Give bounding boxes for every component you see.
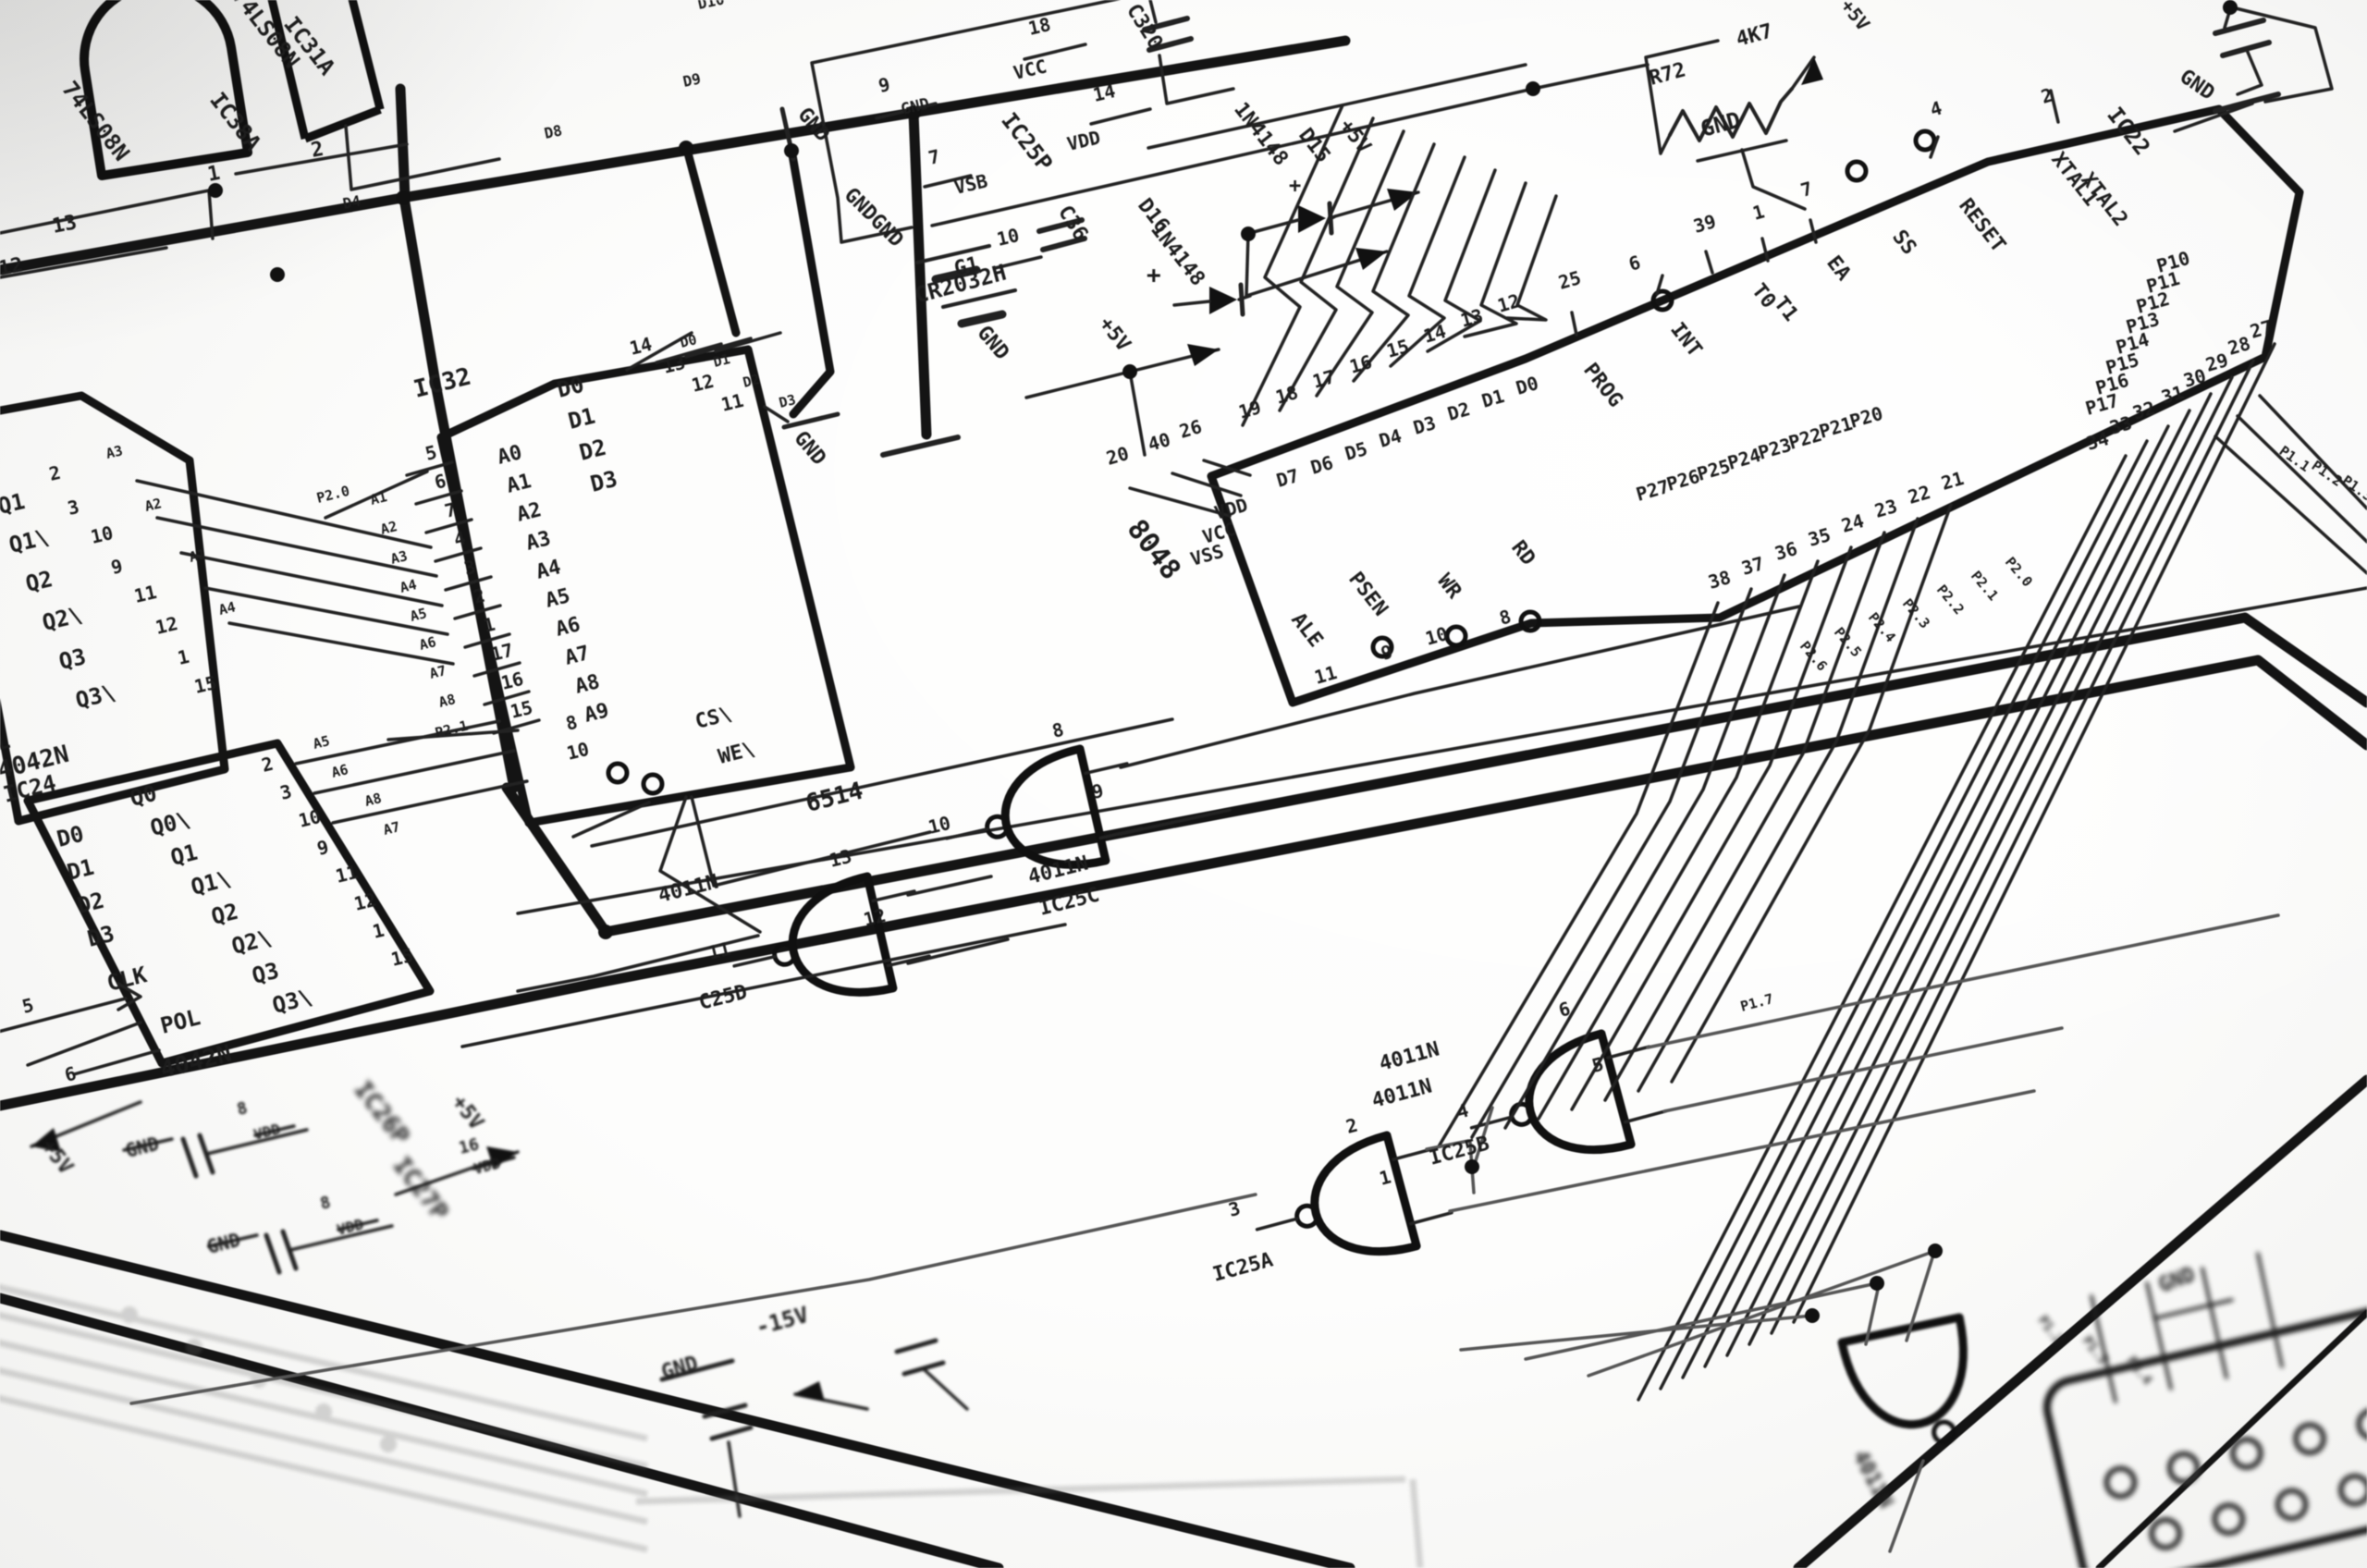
designator: IC26P bbox=[348, 1076, 414, 1150]
nand-gate-ic25b bbox=[1457, 1023, 1673, 1183]
pin-number: 8 bbox=[1049, 718, 1065, 742]
net-label: A3 bbox=[389, 547, 410, 568]
net-label: A8 bbox=[363, 790, 384, 810]
pin-number: 8 bbox=[318, 1193, 333, 1214]
pin-number: 5 bbox=[423, 441, 438, 465]
pin-name: D0 bbox=[55, 821, 87, 852]
net-5v: +5V bbox=[447, 1091, 487, 1134]
pin-number: 6 bbox=[62, 1062, 78, 1086]
pin-number: 19 bbox=[1236, 396, 1264, 423]
designator: C25D bbox=[696, 981, 749, 1015]
pin-number: 2 bbox=[309, 138, 325, 163]
connector-bottom-right bbox=[2042, 1254, 2367, 1568]
pin-number: 1 bbox=[176, 645, 191, 669]
pin-number: 37 bbox=[1739, 552, 1767, 580]
pin-number: 8 bbox=[235, 1098, 250, 1120]
pin-number: 31 bbox=[2159, 381, 2187, 409]
pin-number: 36 bbox=[1772, 537, 1800, 565]
pin-number: 12 bbox=[1495, 289, 1523, 317]
pin-number: 13 bbox=[1458, 304, 1486, 332]
pin-name: A9 bbox=[582, 699, 611, 728]
and-gate-ic38a bbox=[73, 0, 248, 176]
pin-number: 10 bbox=[995, 224, 1022, 251]
pin-name: Q2 bbox=[23, 566, 55, 597]
pin-name: D2 bbox=[1445, 398, 1473, 425]
pin-number: 3 bbox=[461, 556, 477, 580]
pin-name: VSB bbox=[952, 169, 990, 199]
pin-number: 7 bbox=[926, 145, 942, 169]
pin-name: Q1 bbox=[168, 839, 201, 871]
pin-number: 16 bbox=[1347, 350, 1375, 378]
pin-number: 6 bbox=[1626, 251, 1643, 275]
designator: IC27P bbox=[386, 1152, 453, 1226]
net-gnd: GND bbox=[2176, 65, 2219, 104]
pin-name: Q2\ bbox=[40, 602, 85, 636]
pin-name: POL bbox=[158, 1004, 203, 1039]
pin-name: PSEN bbox=[1343, 568, 1392, 620]
pin-name: A0 bbox=[495, 441, 524, 470]
part-label: 4011N bbox=[1377, 1038, 1441, 1076]
pin-name: A8 bbox=[572, 670, 602, 699]
pin-number: 9 bbox=[109, 555, 125, 579]
pin-name: A7 bbox=[562, 642, 592, 670]
pin-number: 7 bbox=[1798, 177, 1815, 201]
nand-gate-c25d bbox=[721, 867, 935, 1023]
net-label: D9 bbox=[681, 69, 703, 91]
pin-number: 40 bbox=[1146, 428, 1173, 456]
pin-name: A4 bbox=[533, 556, 563, 584]
pin-number: 2 bbox=[1343, 1114, 1360, 1138]
net-gnd: GND bbox=[2156, 1264, 2199, 1298]
pin-name: A5 bbox=[543, 584, 572, 613]
pin-number: 16 bbox=[457, 1134, 481, 1158]
net-label: P2.5 bbox=[1831, 624, 1865, 660]
pin-number: 9 bbox=[877, 73, 892, 97]
pin-number: 13 bbox=[827, 845, 853, 872]
pin-name: INT bbox=[1665, 318, 1706, 361]
pin-number: 25 bbox=[1556, 266, 1584, 294]
net-label: D4 bbox=[341, 192, 362, 213]
net-label: P2.1 bbox=[434, 717, 470, 741]
net-label: P2.3 bbox=[1899, 595, 1933, 631]
pin-name: Q3\ bbox=[270, 984, 315, 1019]
pin-number: 26 bbox=[1177, 415, 1205, 443]
pin-name: D3 bbox=[588, 466, 620, 497]
pin-name: A6 bbox=[553, 613, 583, 642]
pin-name: D1 bbox=[566, 403, 598, 435]
net-label: D0 bbox=[679, 331, 699, 351]
net-label: A2 bbox=[379, 518, 399, 538]
pin-number: 15 bbox=[1384, 335, 1412, 362]
pin-name: VDD bbox=[472, 1154, 502, 1177]
value: 4K7 bbox=[1734, 19, 1775, 51]
pin-number: 6 bbox=[1556, 998, 1573, 1022]
pin-name: VSS bbox=[1188, 540, 1226, 570]
pin-number: 10 bbox=[1423, 622, 1451, 650]
pin-number: 12 bbox=[351, 888, 378, 915]
pin-name: D3 bbox=[1411, 411, 1439, 439]
pin-number: 4 bbox=[1928, 96, 1944, 120]
pin-name: A3 bbox=[523, 527, 553, 556]
pin-number: 16 bbox=[498, 668, 525, 694]
net-gnd: GND bbox=[1698, 107, 1743, 142]
part-label: 8048 bbox=[1121, 513, 1187, 585]
schematic-labels: 74LS08NIC38A74LS08NIC31A131212D4D8D9D10G… bbox=[0, 0, 2367, 1512]
ghost-bus bbox=[0, 1283, 1420, 1568]
junction-dots bbox=[208, 0, 2238, 1323]
designator: IC25P bbox=[996, 107, 1058, 176]
net-label: A6 bbox=[330, 761, 350, 781]
pin-number: 10 bbox=[89, 521, 116, 548]
pin-number: 9 bbox=[314, 836, 330, 860]
pin-name: VCC bbox=[1012, 55, 1049, 84]
pin-name: Q1\ bbox=[6, 524, 52, 558]
pin-number: 12 bbox=[153, 612, 180, 639]
net-label: P2.0 bbox=[2002, 554, 2036, 590]
pin-number: 23 bbox=[1872, 495, 1900, 522]
pin-name: D1 bbox=[1479, 385, 1507, 412]
pin-number: 28 bbox=[2226, 332, 2253, 360]
diode-d16 bbox=[1174, 248, 1387, 314]
net-5v: +5V bbox=[1334, 115, 1375, 158]
net-label: A2 bbox=[143, 495, 164, 515]
pin-name: D6 bbox=[1308, 451, 1336, 479]
pin-name: PROG bbox=[1578, 359, 1626, 411]
net-gnd: GND bbox=[204, 1229, 242, 1258]
net-5v: +5V bbox=[1094, 312, 1134, 356]
net-label: A7 bbox=[382, 818, 402, 839]
pin-number: 12 bbox=[689, 370, 716, 397]
pin-name: A1 bbox=[504, 470, 533, 498]
part-label: 4011N bbox=[1369, 1075, 1434, 1113]
pin-name: VDD bbox=[251, 1120, 282, 1143]
net-label: A3 bbox=[104, 442, 125, 462]
net-label: A7 bbox=[428, 662, 448, 682]
designator: IC25B bbox=[1427, 1133, 1491, 1170]
pin-number: 3 bbox=[277, 780, 293, 804]
net-label: D8 bbox=[543, 121, 564, 142]
pin-number: 3 bbox=[1226, 1197, 1243, 1221]
net-label: P2.1 bbox=[1968, 568, 2002, 604]
pin-name: D7 bbox=[1274, 464, 1302, 492]
designator: D15 bbox=[1294, 124, 1334, 167]
net-gnd: GND bbox=[123, 1133, 161, 1162]
pin-number: 5 bbox=[19, 994, 35, 1018]
net-label: A6 bbox=[418, 633, 438, 654]
pin-number: 33 bbox=[2107, 411, 2135, 439]
circuit-diagram: 74LS08NIC38A74LS08NIC31A131212D4D8D9D10G… bbox=[0, 0, 2367, 1568]
pin-name: CS\ bbox=[693, 703, 734, 734]
pin-name: EA bbox=[1821, 251, 1855, 285]
pin-number: 10 bbox=[564, 738, 591, 765]
pin-name: P27 bbox=[1634, 475, 1672, 506]
pin-name: Q3 bbox=[56, 643, 88, 675]
pin-number: 22 bbox=[1906, 481, 1933, 508]
net-label: A4 bbox=[217, 598, 238, 619]
net-label: -15V bbox=[753, 1302, 811, 1341]
net-gnd: GND bbox=[659, 1353, 701, 1385]
schematic-photo: 74LS08NIC38A74LS08NIC31A131212D4D8D9D10G… bbox=[0, 0, 2367, 1568]
pin-name: WE\ bbox=[716, 738, 757, 769]
pin-name: WR bbox=[1432, 570, 1466, 604]
pin-name: D0 bbox=[1514, 372, 1541, 399]
pin-number: 35 bbox=[1806, 523, 1834, 551]
pin-name: D3 bbox=[85, 921, 117, 952]
pin-name: VDD bbox=[335, 1215, 365, 1238]
pin-number: 11 bbox=[718, 389, 745, 416]
pin-number: 20 bbox=[1104, 442, 1132, 470]
pin-number: 4 bbox=[1454, 1099, 1471, 1123]
pin-name: A2 bbox=[514, 498, 544, 527]
pin-name: ALE bbox=[1286, 608, 1327, 652]
pin-name: Q2 bbox=[209, 899, 241, 930]
net-label: A4 bbox=[399, 576, 419, 596]
polarity: + bbox=[1289, 175, 1301, 198]
designator: IC25A bbox=[1210, 1249, 1275, 1287]
pin-name: D4 bbox=[1377, 424, 1404, 452]
pin-name: D2 bbox=[75, 888, 107, 919]
port-wire-fans bbox=[1439, 344, 2367, 1400]
pin-name: D2 bbox=[577, 435, 609, 466]
pin-number: 18 bbox=[1273, 381, 1301, 409]
pin-number: 32 bbox=[2130, 397, 2158, 424]
net-5v: +5V bbox=[1836, 0, 1874, 35]
net-label: P2.4 bbox=[1865, 609, 1899, 645]
net-label: P2.2 bbox=[1933, 582, 1968, 618]
part-label: 1N4148 bbox=[1229, 98, 1293, 170]
part-label: 6514 bbox=[803, 778, 865, 818]
net-label: A5 bbox=[312, 732, 332, 753]
net-label: P1.7 bbox=[1738, 990, 1775, 1015]
part-label: 4011N bbox=[1848, 1447, 1897, 1512]
pin-number: 8 bbox=[563, 711, 579, 735]
pin-number: 11 bbox=[132, 581, 159, 607]
pin-number: 12 bbox=[0, 253, 25, 281]
net-label: A5 bbox=[409, 605, 429, 625]
pin-number: 8 bbox=[1497, 605, 1514, 629]
pin-number: 38 bbox=[1706, 566, 1734, 594]
net-label: D10 bbox=[696, 0, 726, 13]
designator: R72 bbox=[1647, 58, 1688, 90]
pin-name: D5 bbox=[1343, 437, 1370, 465]
part-label: 4042N bbox=[157, 1040, 234, 1084]
pin-name: Q3 bbox=[250, 958, 282, 989]
net-gnd: GND bbox=[972, 322, 1013, 365]
pin-name: D1 bbox=[65, 854, 97, 886]
pin-number: 1 bbox=[205, 162, 222, 187]
net-label: P2.0 bbox=[315, 483, 351, 507]
pin-number: 18 bbox=[1026, 13, 1053, 40]
pin-name: VDD bbox=[1065, 126, 1103, 155]
nand-gate-bottom-right bbox=[1842, 1317, 1984, 1459]
net-gnd: GND bbox=[789, 427, 830, 471]
pin-number: 17 bbox=[488, 639, 515, 666]
pin-number: 10 bbox=[926, 812, 952, 839]
pin-name: SS bbox=[1887, 226, 1920, 259]
pin-number: 3 bbox=[66, 496, 81, 520]
pin-name: RD bbox=[1506, 536, 1539, 570]
pin-name: RESET bbox=[1954, 194, 2009, 257]
net-label: P2.6 bbox=[1797, 638, 1831, 674]
pin-name: Q2\ bbox=[229, 925, 275, 960]
pin-number: 39 bbox=[1691, 210, 1719, 238]
net-label: A8 bbox=[437, 691, 458, 711]
pin-number: 24 bbox=[1839, 509, 1867, 537]
pin-name: Q1\ bbox=[189, 865, 234, 900]
pin-number: 21 bbox=[1939, 467, 1967, 495]
pin-name: Q3\ bbox=[73, 680, 118, 714]
pin-number: 2 bbox=[47, 461, 63, 485]
pin-number: 1 bbox=[1750, 200, 1767, 224]
pin-name: Q0\ bbox=[148, 806, 193, 841]
pin-number: 1 bbox=[1377, 1166, 1393, 1190]
pin-name: Q1 bbox=[0, 488, 28, 520]
pin-number: 2 bbox=[259, 753, 275, 777]
pin-number: 13 bbox=[50, 211, 79, 239]
pin-number: 15 bbox=[508, 696, 534, 723]
polarity: + bbox=[1147, 262, 1161, 289]
